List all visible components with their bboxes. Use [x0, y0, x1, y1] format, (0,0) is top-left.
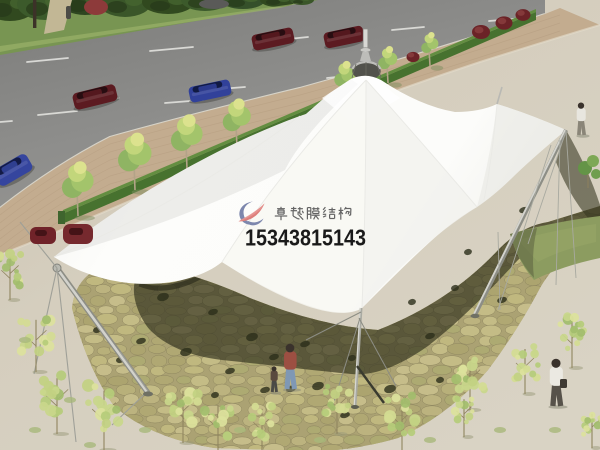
svg-text:15343815143: 15343815143 [245, 225, 366, 251]
